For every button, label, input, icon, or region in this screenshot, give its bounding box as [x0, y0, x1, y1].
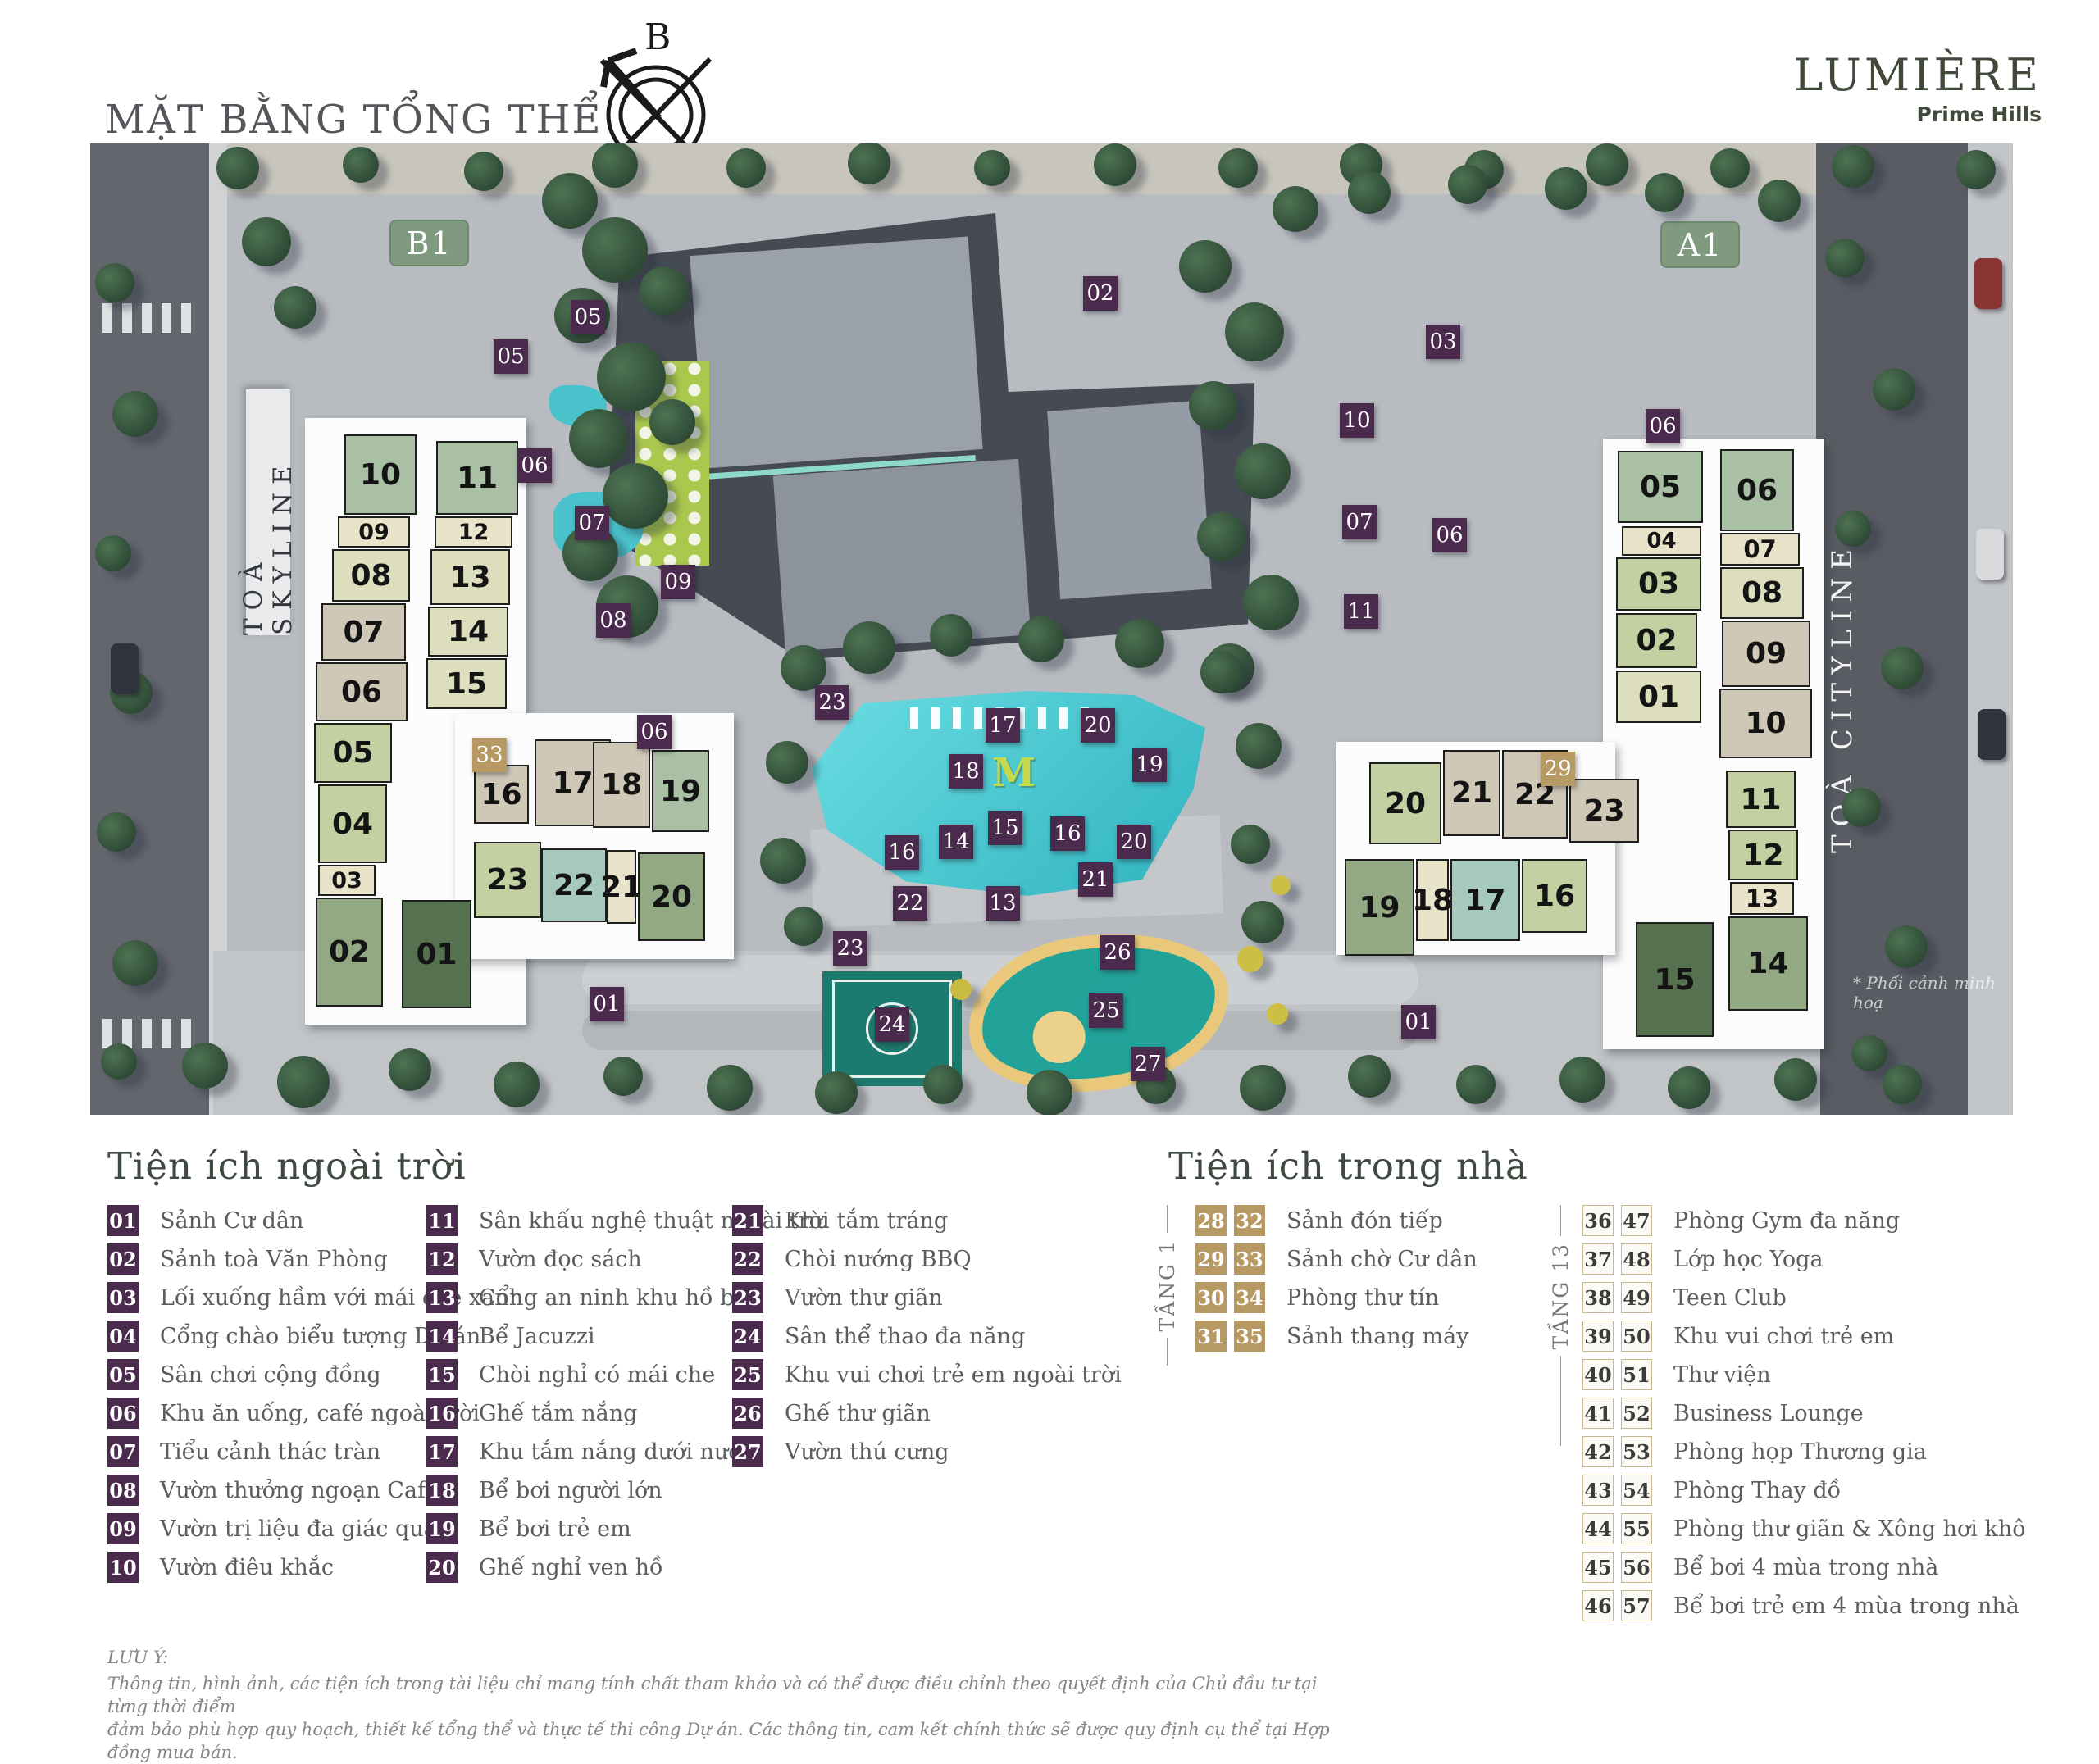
tree [1267, 1003, 1288, 1025]
tree [781, 645, 826, 691]
amenity-marker-07: 07 [1342, 505, 1377, 539]
tree [1225, 302, 1284, 361]
unit-B1-06: 06 [316, 662, 408, 721]
unit-A1-03: 03 [1616, 557, 1701, 611]
floor13-item-number-b: 50 [1621, 1321, 1652, 1352]
tree [1094, 143, 1136, 186]
floor13-item-number-a: 46 [1582, 1590, 1614, 1621]
outdoor-item-22: 22Chòi nướng BBQ [732, 1243, 1122, 1275]
amenity-marker-23: 23 [815, 685, 849, 720]
outdoor-item-number: 17 [426, 1436, 458, 1467]
tree [95, 535, 131, 571]
floor1-item-number-a: 29 [1195, 1243, 1227, 1275]
watermark: * Phối cảnh minh hoạ [1853, 973, 2013, 1012]
unit-A1-21: 21 [1443, 750, 1500, 836]
unit-B1-08: 08 [332, 549, 410, 602]
tree [815, 1071, 858, 1114]
floor13-item-label: Khu vui chơi trẻ em [1673, 1324, 1894, 1349]
site-plan: B1 A1 TOÀ SKYLINE TOÀ CITYLINE M * Phối … [90, 143, 2013, 1115]
floor13-item-number-a: 41 [1582, 1398, 1614, 1429]
unit-A1-10: 10 [1719, 689, 1812, 758]
floor13-tag-label: TẦNG 13 [1549, 1243, 1573, 1349]
amenity-marker-33: 33 [472, 738, 507, 772]
tree [1241, 901, 1284, 943]
amenity-marker-05: 05 [571, 300, 605, 334]
amenity-marker-06: 06 [1432, 518, 1467, 552]
floor13-tag: TẦNG 13 [1548, 1205, 1573, 1451]
unit-B1-12: 12 [435, 516, 512, 548]
outdoor-item-number: 18 [426, 1475, 458, 1506]
tree [1348, 1055, 1391, 1098]
unit-A1-19: 19 [1345, 859, 1414, 956]
unit-B1-09: 09 [338, 516, 410, 548]
tree [603, 463, 668, 529]
outdoor-item-number: 23 [732, 1282, 763, 1313]
brand-logo-name: LUMIÈRE [1755, 49, 2042, 101]
floor13-item-number-b: 53 [1621, 1436, 1652, 1467]
outdoor-item-number: 15 [426, 1359, 458, 1390]
amenity-marker-16: 16 [885, 835, 919, 870]
amenity-marker-06: 06 [1646, 409, 1680, 443]
floor13-item-40: 4051Thư viện [1582, 1359, 2025, 1390]
unit-A1-08: 08 [1720, 567, 1804, 619]
floor13-item-number-a: 45 [1582, 1552, 1614, 1583]
tree [1645, 173, 1684, 212]
floor13-item-number-b: 56 [1621, 1552, 1652, 1583]
floor13-item-45: 4556Bể bơi 4 mùa trong nhà [1582, 1552, 2025, 1583]
floor13-item-label: Teen Club [1673, 1285, 1787, 1311]
amenity-marker-06: 06 [517, 448, 552, 483]
tree [766, 741, 808, 784]
unit-B1-10: 10 [344, 434, 417, 515]
outdoor-item-label: Sân chơi cộng đồng [160, 1362, 381, 1388]
tree [1710, 148, 1750, 188]
tree [1218, 148, 1258, 188]
outdoor-item-label: Vườn thư giãn [785, 1285, 943, 1311]
unit-A1-20: 20 [1369, 762, 1441, 844]
unit-B1-22: 22 [541, 848, 607, 922]
unit-B1-05: 05 [314, 723, 392, 783]
tree [97, 812, 136, 852]
tree [950, 979, 972, 1000]
outdoor-item-number: 02 [107, 1243, 139, 1275]
tree [1825, 239, 1865, 278]
tree [1243, 575, 1299, 630]
amenity-marker-01: 01 [590, 987, 624, 1021]
compass-label: B [644, 16, 671, 58]
tree [1448, 165, 1487, 204]
outdoor-item-21: 21Khu tắm tráng [732, 1205, 1122, 1236]
outdoor-item-number: 22 [732, 1243, 763, 1275]
tree [1881, 647, 1924, 689]
tree [603, 1057, 643, 1096]
outdoor-item-label: Khu tắm nắng dưới nước [479, 1439, 754, 1465]
unit-B1-03: 03 [318, 865, 376, 896]
unit-A1-06: 06 [1720, 449, 1794, 531]
unit-A1-14: 14 [1728, 916, 1808, 1011]
amenity-marker-07: 07 [575, 506, 609, 540]
tree [1559, 1057, 1605, 1102]
outdoor-item-23: 23Vườn thư giãn [732, 1282, 1122, 1313]
floor13-item-number-b: 54 [1621, 1475, 1652, 1506]
outdoor-item-number: 04 [107, 1321, 139, 1352]
floor13-item-number-a: 36 [1582, 1205, 1614, 1236]
floor-tag-line [1560, 1356, 1561, 1446]
outdoor-item-label: Sảnh toà Văn Phòng [160, 1247, 388, 1272]
tree [1668, 1066, 1710, 1109]
amenity-marker-24: 24 [875, 1007, 909, 1042]
central-building-roof [1047, 401, 1212, 599]
floor-tag-line [1167, 1205, 1168, 1233]
amenity-marker-05: 05 [494, 339, 528, 374]
floor13-item-label: Phòng thư giãn & Xông hơi khô [1673, 1516, 2025, 1542]
floor13-item-46: 4657Bể bơi trẻ em 4 mùa trong nhà [1582, 1590, 2025, 1621]
outdoor-item-26: 26Ghế thư giãn [732, 1398, 1122, 1429]
floor13-item-label: Thư viện [1673, 1362, 1771, 1388]
floor1-item-label: Phòng thư tín [1286, 1285, 1439, 1311]
outdoor-item-label: Bể bơi người lớn [479, 1478, 662, 1503]
unit-A1-01: 01 [1616, 671, 1701, 723]
tree [649, 399, 695, 445]
tree [95, 263, 134, 302]
outdoor-column-3: 21Khu tắm tráng22Chòi nướng BBQ23Vườn th… [732, 1205, 1122, 1475]
tree [1236, 723, 1282, 769]
tree [1586, 143, 1628, 186]
outdoor-item-27: 27Vườn thú cưng [732, 1436, 1122, 1467]
tree [112, 940, 158, 986]
outdoor-item-number: 12 [426, 1243, 458, 1275]
tree [1237, 946, 1263, 972]
floor13-item-number-b: 57 [1621, 1590, 1652, 1621]
unit-B1-02: 02 [316, 898, 383, 1007]
floor13-item-36: 3647Phòng Gym đa năng [1582, 1205, 2025, 1236]
tree [1231, 825, 1270, 864]
amenity-marker-18: 18 [949, 754, 983, 789]
tree [274, 286, 316, 329]
floor13-list: 3647Phòng Gym đa năng3748Lớp học Yoga384… [1582, 1205, 2025, 1629]
amenity-marker-23: 23 [833, 931, 867, 966]
unit-A1-12: 12 [1728, 830, 1798, 880]
outdoor-item-label: Cổng an ninh khu hồ bơi [479, 1285, 754, 1311]
tree [242, 217, 291, 266]
tree [1885, 925, 1928, 968]
car [111, 643, 139, 694]
note-line: Thông tin, hình ảnh, các tiện ích trong … [107, 1672, 1337, 1718]
floor1-tag: TẦNG 1 [1154, 1205, 1179, 1381]
tree [569, 409, 628, 468]
unit-B1-14: 14 [428, 607, 508, 657]
outdoor-item-number: 20 [426, 1552, 458, 1583]
outdoor-item-number: 01 [107, 1205, 139, 1236]
tree [1873, 368, 1915, 411]
outdoor-item-number: 21 [732, 1205, 763, 1236]
tree [726, 148, 766, 188]
floor1-tag-label: TẦNG 1 [1155, 1239, 1179, 1331]
amenity-marker-03: 03 [1426, 325, 1460, 359]
amenity-marker-15: 15 [988, 811, 1022, 845]
tree [101, 1043, 137, 1080]
tree [1189, 381, 1238, 430]
outdoor-item-label: Chòi nghỉ có mái che [479, 1362, 715, 1388]
floor1-item-28: 2832Sảnh đón tiếp [1195, 1205, 1477, 1236]
floor13-item-number-a: 38 [1582, 1282, 1614, 1313]
floor1-item-label: Sảnh thang máy [1286, 1324, 1469, 1349]
outdoor-item-label: Ghế thư giãn [785, 1401, 931, 1426]
outdoor-item-label: Vườn thú cưng [785, 1439, 949, 1465]
outdoor-item-number: 03 [107, 1282, 139, 1313]
tree [848, 143, 890, 184]
amenity-marker-20: 20 [1081, 708, 1115, 743]
outdoor-item-label: Bể Jacuzzi [479, 1324, 595, 1349]
floor13-item-number-b: 49 [1621, 1282, 1652, 1313]
amenity-marker-14: 14 [939, 825, 973, 859]
floor13-item-number-a: 42 [1582, 1436, 1614, 1467]
tree [343, 147, 379, 183]
tree [1197, 512, 1246, 561]
floor13-item-label: Phòng họp Thương gia [1673, 1439, 1927, 1465]
unit-B1-23: 23 [474, 842, 541, 918]
unit-A1-04: 04 [1622, 526, 1701, 556]
unit-B1-15: 15 [426, 658, 507, 709]
floor1-item-number-b: 33 [1234, 1243, 1265, 1275]
outdoor-item-19: 19Bể bơi trẻ em [426, 1513, 830, 1544]
tree [1956, 150, 1996, 189]
tree [1348, 171, 1391, 214]
tree [1832, 145, 1874, 188]
outdoor-item-number: 19 [426, 1513, 458, 1544]
floor13-item-37: 3748Lớp học Yoga [1582, 1243, 2025, 1275]
amenity-marker-27: 27 [1131, 1047, 1165, 1081]
tree [1456, 1065, 1496, 1104]
amenity-marker-16: 16 [1050, 816, 1085, 851]
outdoor-item-number: 11 [426, 1205, 458, 1236]
car [1978, 709, 2006, 760]
tree [1179, 240, 1232, 293]
outdoor-item-number: 07 [107, 1436, 139, 1467]
tree [582, 217, 648, 283]
floor13-item-42: 4253Phòng họp Thương gia [1582, 1436, 2025, 1467]
unit-B1-19: 19 [652, 750, 709, 832]
unit-B1-13: 13 [430, 549, 510, 605]
floor13-item-number-b: 52 [1621, 1398, 1652, 1429]
outdoor-item-18: 18Bể bơi người lớn [426, 1475, 830, 1506]
unit-A1-13: 13 [1730, 882, 1794, 915]
unit-A1-15: 15 [1636, 922, 1714, 1037]
floor1-item-label: Sảnh chờ Cư dân [1286, 1247, 1477, 1272]
disclaimer-note: LƯU Ý: Thông tin, hình ảnh, các tiện ích… [107, 1646, 1337, 1764]
tree [640, 266, 689, 316]
amenity-marker-02: 02 [1083, 276, 1118, 311]
floor1-item-number-a: 28 [1195, 1205, 1227, 1236]
tree [1851, 1035, 1887, 1071]
tree [1774, 1058, 1817, 1101]
amenity-marker-09: 09 [661, 565, 695, 599]
floor-tag-line [1560, 1205, 1561, 1236]
tree [843, 621, 895, 674]
tree [760, 838, 806, 884]
note-line: đảm bảo phù hợp quy hoạch, thiết kế tổng… [107, 1718, 1337, 1764]
outdoor-item-label: Sân thể thao đa năng [785, 1324, 1025, 1349]
floor13-item-label: Business Lounge [1673, 1401, 1864, 1426]
floor13-item-number-a: 43 [1582, 1475, 1614, 1506]
unit-A1-11: 11 [1726, 771, 1796, 828]
tree [707, 1065, 753, 1111]
outdoor-item-number: 24 [732, 1321, 763, 1352]
outdoor-item-number: 25 [732, 1359, 763, 1390]
tree [597, 343, 666, 411]
amenity-marker-26: 26 [1100, 935, 1135, 970]
tree [930, 614, 972, 657]
tree [1545, 167, 1587, 210]
amenity-marker-11: 11 [1344, 594, 1378, 629]
tree [1018, 616, 1064, 662]
unit-A1-07: 07 [1720, 533, 1800, 566]
outdoor-item-24: 24Sân thể thao đa năng [732, 1321, 1122, 1352]
tree [1235, 443, 1291, 499]
page: { "header": { "title": "MẶT BẰNG TỔNG TH… [0, 0, 2099, 1739]
outdoor-item-label: Vườn đọc sách [479, 1247, 642, 1272]
car [1974, 258, 2002, 309]
playground-sand [1030, 1007, 1089, 1066]
amenity-marker-29: 29 [1541, 752, 1575, 786]
building-label-a1: A1 [1660, 221, 1740, 268]
outdoor-item-number: 05 [107, 1359, 139, 1390]
amenity-marker-08: 08 [596, 603, 631, 638]
tree [1200, 651, 1243, 693]
unit-A1-17: 17 [1450, 859, 1520, 941]
outdoor-item-label: Vườn trị liệu đa giác quan [160, 1516, 451, 1542]
tree [1115, 619, 1164, 668]
floor13-item-number-a: 37 [1582, 1243, 1614, 1275]
amenity-marker-20: 20 [1117, 825, 1151, 859]
outdoor-item-label: Vườn thưởng ngoạn Cafe [160, 1478, 439, 1503]
floor13-item-label: Phòng Thay đồ [1673, 1478, 1841, 1503]
tree [542, 173, 598, 229]
unit-B1-18: 18 [593, 742, 650, 828]
unit-B1-01: 01 [402, 900, 471, 1008]
floor13-item-44: 4455Phòng thư giãn & Xông hơi khô [1582, 1513, 2025, 1544]
floor13-item-label: Bể bơi 4 mùa trong nhà [1673, 1555, 1938, 1580]
unit-B1-04: 04 [318, 784, 387, 863]
amenity-marker-25: 25 [1089, 993, 1123, 1028]
unit-A1-05: 05 [1618, 451, 1703, 523]
indoor-heading: Tiện ích trong nhà [1168, 1144, 1528, 1188]
building-label-b1: B1 [389, 220, 469, 266]
floor13-item-41: 4152Business Lounge [1582, 1398, 2025, 1429]
floor1-item-29: 2933Sảnh chờ Cư dân [1195, 1243, 1477, 1275]
car [1976, 529, 2004, 580]
outdoor-heading: Tiện ích ngoài trời [107, 1144, 467, 1188]
amenity-marker-01: 01 [1401, 1005, 1436, 1039]
floor13-item-39: 3950Khu vui chơi trẻ em [1582, 1321, 2025, 1352]
tree [1027, 1070, 1072, 1115]
tree [592, 143, 638, 188]
tree [464, 152, 503, 191]
outdoor-item-number: 08 [107, 1475, 139, 1506]
note-title: LƯU Ý: [107, 1646, 1337, 1669]
tree [389, 1048, 431, 1091]
tree [1842, 788, 1881, 827]
tower-name-skyline: TOÀ SKYLINE [246, 389, 290, 635]
brand-logo: LUMIÈRE Prime Hills [1755, 49, 2042, 126]
floor1-list: 2832Sảnh đón tiếp2933Sảnh chờ Cư dân3034… [1195, 1205, 1477, 1359]
floor1-item-number-b: 32 [1234, 1205, 1265, 1236]
tree [112, 391, 158, 437]
outdoor-item-label: Ghế tắm nắng [479, 1401, 637, 1426]
outdoor-item-number: 13 [426, 1282, 458, 1313]
amenity-marker-19: 19 [1132, 748, 1167, 782]
tree [1240, 1065, 1286, 1111]
amenity-marker-21: 21 [1078, 862, 1113, 897]
outdoor-item-number: 09 [107, 1513, 139, 1544]
outdoor-item-label: Chòi nướng BBQ [785, 1247, 972, 1272]
floor-tag-line [1167, 1338, 1168, 1366]
floor13-item-43: 4354Phòng Thay đồ [1582, 1475, 2025, 1506]
unit-A1-02: 02 [1616, 613, 1697, 668]
central-building-roof [690, 236, 982, 468]
floor1-item-number-a: 30 [1195, 1282, 1227, 1313]
brand-monogram-icon: M [992, 750, 1036, 796]
crosswalk [102, 303, 193, 333]
floor13-item-label: Bể bơi trẻ em 4 mùa trong nhà [1673, 1594, 2019, 1619]
page-title: MẶT BẰNG TỔNG THỂ [105, 97, 603, 143]
unit-A1-23: 23 [1569, 779, 1639, 843]
floor1-item-number-b: 34 [1234, 1282, 1265, 1313]
outdoor-item-number: 06 [107, 1398, 139, 1429]
floor13-item-number-a: 40 [1582, 1359, 1614, 1390]
amenity-marker-10: 10 [1340, 403, 1374, 438]
amenity-marker-13: 13 [986, 886, 1020, 921]
tree [494, 1062, 540, 1107]
floor13-item-number-b: 48 [1621, 1243, 1652, 1275]
amenity-marker-17: 17 [986, 708, 1020, 743]
outdoor-item-20: 20Ghế nghỉ ven hồ [426, 1552, 830, 1583]
unit-B1-20: 20 [638, 852, 705, 941]
outdoor-item-label: Khu vui chơi trẻ em ngoài trời [785, 1362, 1122, 1388]
outdoor-item-label: Vườn điêu khắc [160, 1555, 334, 1580]
outdoor-item-number: 26 [732, 1398, 763, 1429]
floor1-item-label: Sảnh đón tiếp [1286, 1208, 1443, 1234]
outdoor-item-number: 10 [107, 1552, 139, 1583]
tree [1758, 180, 1801, 222]
outdoor-item-number: 14 [426, 1321, 458, 1352]
outdoor-item-label: Sảnh Cư dân [160, 1208, 303, 1234]
floor13-item-number-b: 55 [1621, 1513, 1652, 1544]
tree [277, 1056, 330, 1108]
floor13-item-number-a: 44 [1582, 1513, 1614, 1544]
outdoor-item-label: Tiểu cảnh thác tràn [160, 1439, 380, 1465]
unit-B1-07: 07 [321, 603, 406, 661]
tree [923, 1065, 963, 1104]
floor13-item-label: Lớp học Yoga [1673, 1247, 1824, 1272]
central-building-roof [773, 459, 1031, 652]
unit-B1-16: 16 [474, 765, 529, 824]
floor1-item-31: 3135Sảnh thang máy [1195, 1321, 1477, 1352]
tree [974, 150, 1010, 186]
outdoor-item-number: 16 [426, 1398, 458, 1429]
unit-A1-18: 18 [1416, 859, 1449, 941]
floor1-item-number-a: 31 [1195, 1321, 1227, 1352]
tree [1883, 1065, 1922, 1104]
outdoor-item-number: 27 [732, 1436, 763, 1467]
outdoor-item-25: 25Khu vui chơi trẻ em ngoài trời [732, 1359, 1122, 1390]
outdoor-item-label: Khu tắm tráng [785, 1208, 948, 1234]
amenity-marker-22: 22 [893, 886, 927, 921]
floor13-item-number-b: 47 [1621, 1205, 1652, 1236]
floor13-item-number-b: 51 [1621, 1359, 1652, 1390]
amenity-marker-06: 06 [637, 715, 672, 749]
unit-A1-09: 09 [1722, 621, 1810, 687]
